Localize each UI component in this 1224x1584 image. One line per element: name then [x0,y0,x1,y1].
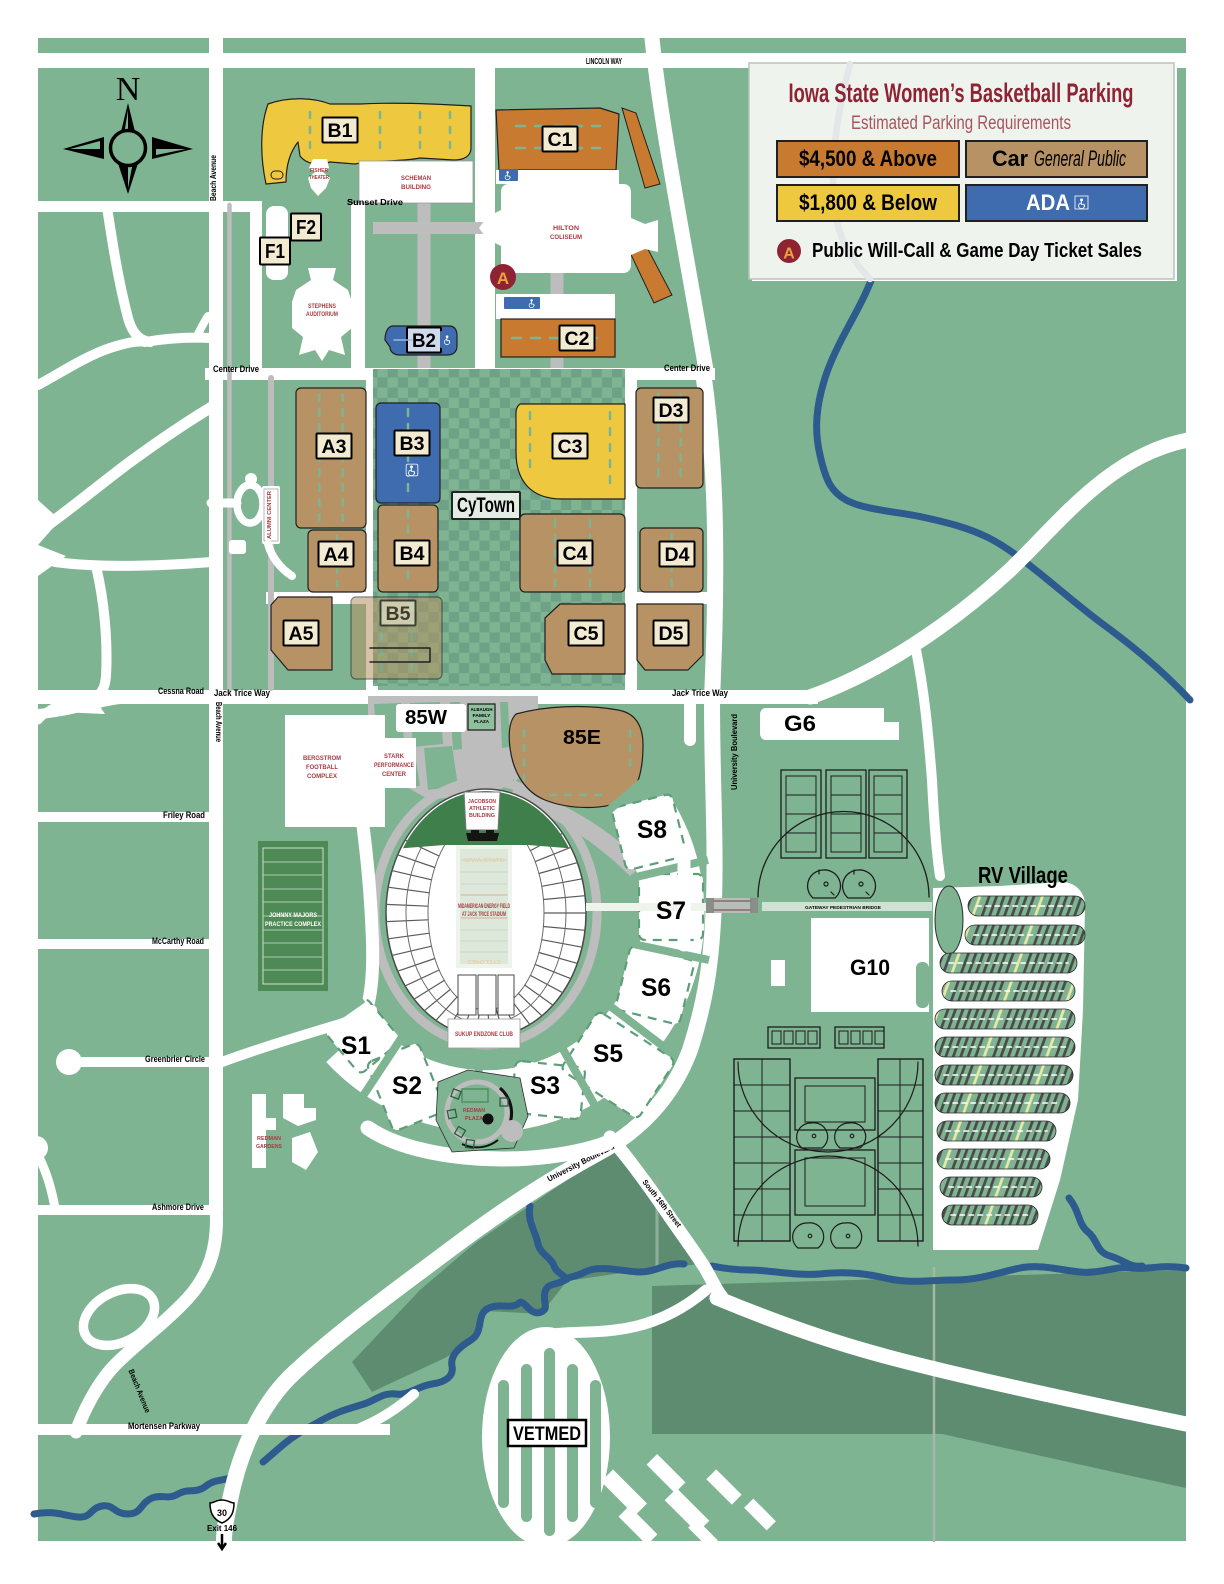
svg-text:Public Will-Call & Game Day Ti: Public Will-Call & Game Day Ticket Sales [812,240,1142,262]
svg-text:Greenbrier Circle: Greenbrier Circle [145,1054,205,1064]
svg-text:B2: B2 [412,331,436,352]
svg-text:85E: 85E [563,727,601,749]
svg-text:D5: D5 [659,624,684,645]
svg-text:S2: S2 [392,1072,422,1100]
svg-text:A5: A5 [289,624,314,645]
svg-text:D4: D4 [665,545,690,566]
svg-text:REDMAN: REDMAN [463,1108,485,1114]
svg-text:A: A [497,269,509,288]
svg-text:CYCLONES: CYCLONES [466,958,501,964]
svg-text:G6: G6 [784,711,816,736]
svg-text:$1,800 & Below: $1,800 & Below [799,190,938,215]
svg-text:S5: S5 [593,1040,623,1068]
svg-text:Estimated Parking Requirements: Estimated Parking Requirements [851,113,1071,134]
svg-text:LINCOLN WAY: LINCOLN WAY [586,57,622,66]
svg-text:S6: S6 [641,974,671,1002]
svg-text:Beach Avenue: Beach Avenue [209,155,218,201]
svg-text:C2: C2 [565,329,590,350]
svg-text:SUKUP ENDZONE CLUB: SUKUP ENDZONE CLUB [455,1032,514,1038]
svg-text:PRACTICE COMPLEX: PRACTICE COMPLEX [265,921,322,928]
svg-text:F2: F2 [296,217,316,239]
svg-text:Ashmore Drive: Ashmore Drive [152,1202,204,1212]
svg-text:JOHNNY MAJORS: JOHNNY MAJORS [269,912,318,919]
svg-text:B1: B1 [328,121,353,142]
svg-text:BUILDING: BUILDING [469,813,495,819]
svg-text:C5: C5 [574,624,599,645]
svg-text:Sunset Drive: Sunset Drive [347,198,404,207]
svg-text:CyTown: CyTown [457,494,515,517]
svg-text:ATHLETIC: ATHLETIC [469,806,495,812]
svg-text:MIDAMERICAN ENERGY FIELD: MIDAMERICAN ENERGY FIELD [458,904,510,910]
svg-text:B5: B5 [386,604,411,625]
svg-text:FAMILY: FAMILY [473,713,491,718]
svg-text:ADA: ADA [1026,190,1070,215]
svg-text:GARDENS: GARDENS [256,1144,282,1150]
svg-text:BERGSTROM: BERGSTROM [303,755,341,762]
svg-text:30: 30 [217,1508,227,1518]
svg-text:B3: B3 [400,434,425,455]
svg-text:Center Drive: Center Drive [664,363,710,373]
svg-text:FOOTBALL: FOOTBALL [306,764,338,771]
svg-text:Center Drive: Center Drive [213,364,259,374]
svg-text:S7: S7 [656,897,686,925]
svg-text:N: N [116,71,141,108]
svg-text:C4: C4 [563,544,588,565]
svg-text:McCarthy Road: McCarthy Road [152,936,204,946]
svg-text:$4,500 & Above: $4,500 & Above [799,146,937,171]
svg-text:Friley Road: Friley Road [163,810,205,820]
svg-text:COMPLEX: COMPLEX [307,773,338,780]
svg-text:Mortensen Parkway: Mortensen Parkway [128,1421,200,1431]
svg-text:AT JACK TRICE STADIUM: AT JACK TRICE STADIUM [462,912,506,918]
svg-text:AUDITORIUM: AUDITORIUM [306,312,338,318]
svg-text:SCHEMAN: SCHEMAN [401,175,431,182]
svg-text:RV Village: RV Village [978,862,1068,888]
svg-text:CENTER: CENTER [382,771,406,778]
svg-text:85W: 85W [405,707,447,729]
svg-text:HILTON: HILTON [553,225,579,232]
svg-text:REDMAN: REDMAN [257,1136,281,1142]
svg-text:General Public: General Public [1034,146,1126,171]
svg-text:Jack Trice Way: Jack Trice Way [672,688,728,698]
svg-text:VETMED: VETMED [513,1424,581,1445]
svg-text:IOWA STATE: IOWA STATE [464,858,505,864]
svg-text:Iowa State Women’s Basketball: Iowa State Women’s Basketball Parking [789,78,1134,108]
svg-text:STEPHENS: STEPHENS [308,304,336,310]
svg-text:GATEWAY PEDESTRIAN BRIDGE: GATEWAY PEDESTRIAN BRIDGE [805,905,881,910]
svg-text:Jack Trice Way: Jack Trice Way [214,688,270,698]
svg-text:THEATER: THEATER [309,175,329,181]
svg-text:JACOBSON: JACOBSON [468,799,496,805]
svg-text:D3: D3 [659,401,684,422]
svg-text:Exit 146: Exit 146 [207,1524,238,1533]
svg-text:C1: C1 [548,130,573,151]
svg-text:C3: C3 [558,437,583,458]
svg-text:A: A [783,246,795,263]
svg-text:Beach Avenue: Beach Avenue [214,702,223,742]
svg-text:S8: S8 [637,816,667,844]
svg-text:ALUMNI CENTER: ALUMNI CENTER [267,491,273,539]
svg-text:B4: B4 [400,544,425,565]
svg-text:S3: S3 [530,1072,560,1100]
svg-text:COLISEUM: COLISEUM [550,234,582,241]
svg-text:Cessna Road: Cessna Road [158,686,204,696]
svg-text:ALBAUGH: ALBAUGH [471,707,494,712]
svg-text:STARK: STARK [384,753,404,760]
svg-text:F1: F1 [265,241,285,263]
svg-text:PLAZA: PLAZA [465,1116,483,1122]
svg-text:University Boulevard: University Boulevard [730,714,739,790]
svg-text:PERFORMANCE: PERFORMANCE [374,762,415,769]
svg-text:FISHER: FISHER [310,168,328,174]
svg-text:A3: A3 [322,437,347,458]
svg-text:BUILDING: BUILDING [401,184,431,191]
svg-text:Car: Car [992,146,1028,171]
svg-text:PLAZA: PLAZA [474,719,490,724]
svg-text:A4: A4 [324,545,349,566]
svg-text:G10: G10 [850,955,890,980]
svg-text:S1: S1 [341,1032,371,1060]
